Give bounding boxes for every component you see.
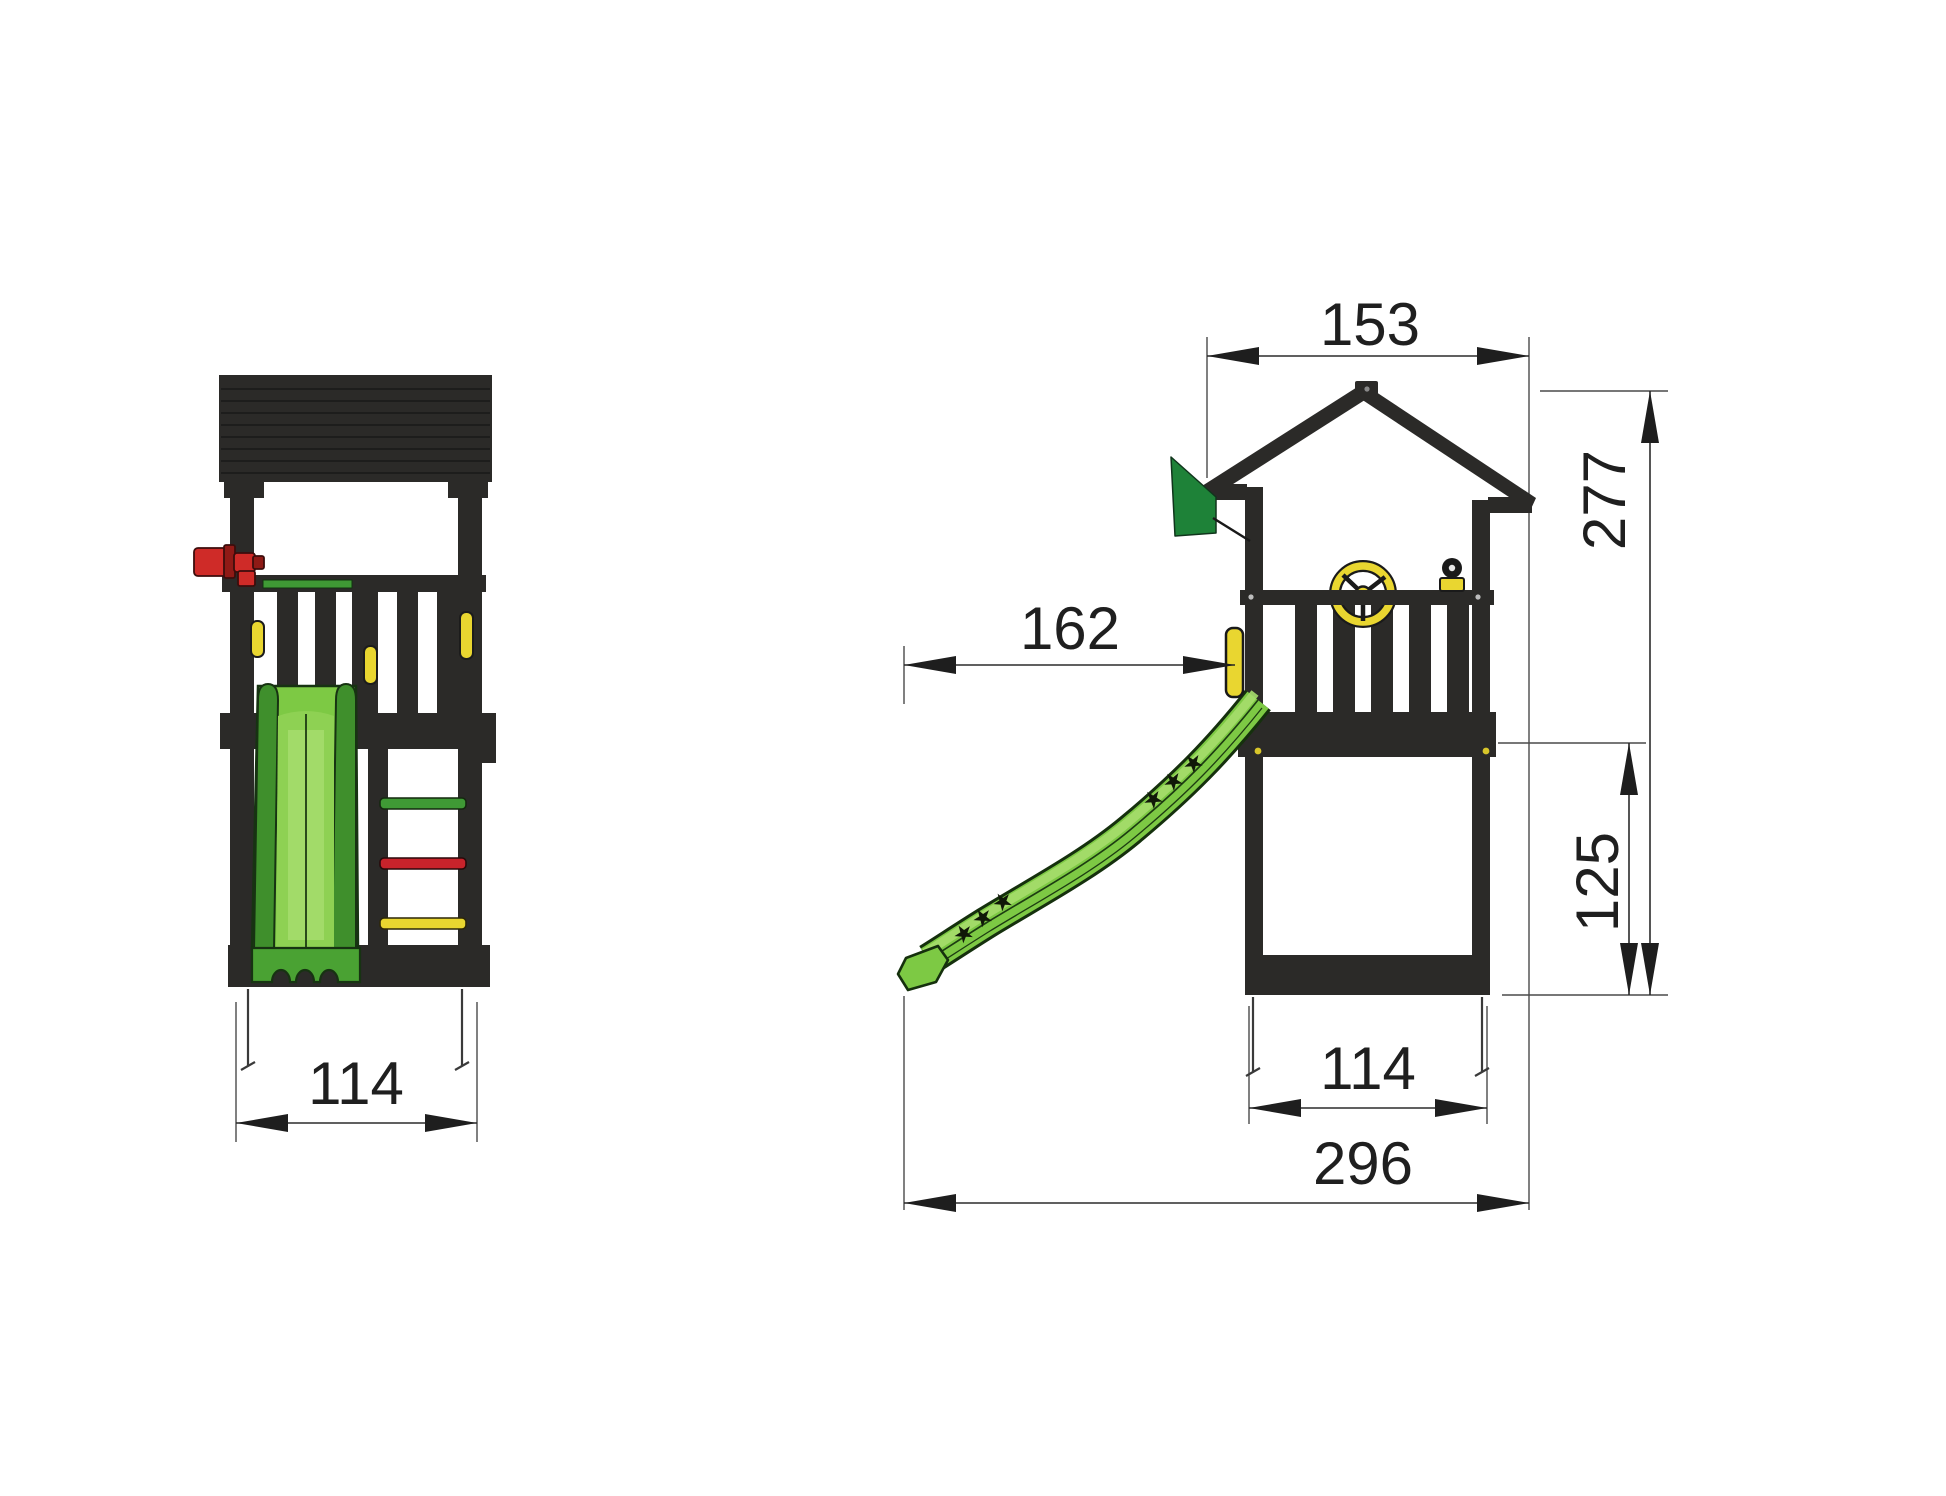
side-dim-slide-reach-label: 162	[1020, 595, 1120, 662]
side-rail-slat	[1409, 604, 1431, 714]
side-dim-total-length-label: 296	[1313, 1130, 1413, 1197]
ladder-rung-red	[380, 858, 466, 869]
front-slide	[252, 684, 360, 982]
side-rail-slat	[1447, 604, 1469, 714]
side-dim-total-height-label: 277	[1571, 450, 1638, 550]
deck-bolt	[1255, 748, 1262, 755]
flag-icon	[1171, 457, 1216, 536]
side-slide: ★ ★ ★ ★ ★ ★	[898, 693, 1262, 990]
deck-bolt	[1483, 748, 1490, 755]
ladder-rung-green	[380, 798, 466, 809]
rail-bolt	[1248, 594, 1253, 599]
side-dim-base-width: 114	[1246, 997, 1489, 1124]
side-dim-platform-height-label: 125	[1564, 832, 1631, 932]
slide-top-handle	[1226, 628, 1243, 697]
front-view: 114	[194, 375, 496, 1142]
front-ladder-rungs	[380, 798, 466, 929]
side-rail-slat	[1295, 604, 1317, 714]
slide-foot	[898, 946, 948, 990]
front-ladder-rail-left	[368, 749, 388, 945]
handle	[460, 612, 473, 659]
side-deck-band	[1238, 712, 1496, 757]
knob-icon	[1440, 558, 1464, 591]
side-rail-top-band	[1240, 590, 1494, 605]
playtower-dimension-drawing: 114	[0, 0, 1946, 1496]
telescope-tip	[253, 556, 264, 569]
telescope-eyepiece	[234, 553, 255, 572]
side-dim-base-width-label: 114	[1320, 1035, 1416, 1102]
side-dim-platform-height: 125	[1498, 743, 1646, 995]
front-dim-base-width-label: 114	[308, 1050, 404, 1117]
front-deck-step	[482, 713, 496, 763]
front-dim-base-width: 114	[236, 989, 477, 1142]
slide-rail-right	[332, 684, 356, 950]
front-slat	[437, 592, 458, 713]
side-structure	[1202, 381, 1536, 995]
side-sandbox-band	[1245, 955, 1490, 995]
side-dim-roof-width-label: 153	[1320, 291, 1420, 358]
side-dim-slide-reach: 162	[904, 595, 1235, 704]
roof-eave-block-right	[1488, 497, 1532, 513]
front-rail-green-strip	[263, 580, 352, 588]
ladder-rung-yellow	[380, 918, 466, 929]
roof-beam-right	[1358, 384, 1536, 511]
flag-strut	[1213, 518, 1250, 541]
technical-drawing-page: 114	[0, 0, 1946, 1496]
roof-beam-left	[1202, 384, 1368, 500]
side-view: ★ ★ ★ ★ ★ ★ 153 277	[898, 291, 1668, 1212]
telescope-mount	[238, 571, 255, 586]
handle	[364, 646, 377, 684]
slide-rail-left	[254, 684, 278, 950]
front-roof	[219, 375, 492, 482]
roof-peak-bolt	[1364, 386, 1369, 391]
handle	[251, 621, 264, 657]
front-slat	[397, 592, 418, 713]
rail-bolt	[1475, 594, 1480, 599]
